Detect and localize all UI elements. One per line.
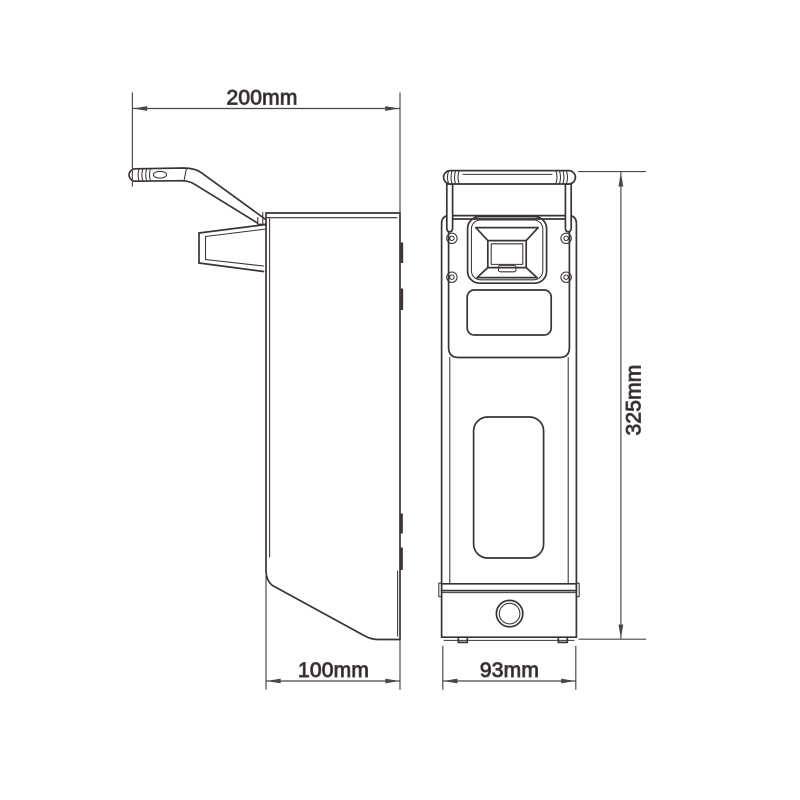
arrowhead-93-right xyxy=(561,679,575,684)
dim-label-325mm: 325mm xyxy=(623,364,646,435)
label-window-frame xyxy=(467,290,551,335)
lever-grip-knurling xyxy=(138,169,151,182)
dispenser-technical-drawing: 200mm 100mm 93mm 325mm xyxy=(0,0,800,800)
elbow-lever-side xyxy=(129,168,265,223)
pump-inner-frame xyxy=(471,220,542,280)
pump-piston-box xyxy=(488,241,526,268)
arrowhead-200-left xyxy=(133,106,147,111)
arrowhead-200-right xyxy=(385,106,399,111)
arrowhead-93-left xyxy=(443,679,457,684)
side-body-bottom-edge xyxy=(266,571,400,640)
screw-top-left-center xyxy=(450,236,454,240)
lever-bend-line xyxy=(184,168,187,181)
pump-recess-bottom xyxy=(477,268,537,278)
pump-outlet-slot xyxy=(498,265,516,271)
bottom-band xyxy=(439,583,579,627)
lever-rod-right xyxy=(565,184,571,232)
dim-label-200mm: 200mm xyxy=(226,87,297,110)
tank-side-inner-lines xyxy=(450,358,568,584)
pump-outer-frame xyxy=(468,217,547,284)
lever-rod-left xyxy=(447,184,453,232)
dim-label-100mm: 100mm xyxy=(298,659,369,682)
side-body xyxy=(266,213,402,640)
drain-port-outer-circle xyxy=(496,600,522,626)
spout-top-inner-line xyxy=(206,229,267,237)
band-tab-right xyxy=(576,583,579,596)
lever-rods-front xyxy=(447,184,571,232)
lever-top-edge xyxy=(135,168,265,219)
pump-housing xyxy=(468,217,547,284)
dimension-drawing-canvas: 200mm 100mm 93mm 325mm xyxy=(0,0,800,800)
front-view xyxy=(439,171,579,643)
arrowhead-100-left xyxy=(267,679,281,684)
spout-top-edge xyxy=(199,225,266,234)
band-tab-left xyxy=(439,583,442,596)
push-bar-tube xyxy=(444,171,576,184)
pump-recess-top xyxy=(476,228,538,241)
push-bar-front xyxy=(444,171,576,184)
sight-window xyxy=(474,417,544,558)
spout-bottom-edge xyxy=(199,263,264,272)
arrowhead-100-right xyxy=(385,679,399,684)
drain-port-inner-circle xyxy=(499,603,520,624)
screw-bottom-left-center xyxy=(450,275,454,279)
arrowhead-325-bottom xyxy=(619,625,624,639)
lever-grip-oval-detail xyxy=(153,171,166,178)
front-body-outline xyxy=(442,216,577,638)
dim-label-93mm: 93mm xyxy=(480,659,539,682)
screw-bottom-right-center xyxy=(564,275,568,279)
arrowhead-325-top xyxy=(619,172,624,186)
sight-window-frame xyxy=(474,417,544,558)
lever-bottom-edge xyxy=(136,181,258,223)
label-window xyxy=(467,290,551,335)
dimension-front-width: 93mm xyxy=(443,646,576,690)
screw-top-right-center xyxy=(564,236,568,240)
pump-piston-inner xyxy=(491,244,523,265)
dimension-height: 325mm xyxy=(578,172,646,640)
side-view xyxy=(129,168,402,640)
dimension-bottom-depth: 100mm xyxy=(266,573,400,690)
dimension-top-width: 200mm xyxy=(132,87,400,212)
